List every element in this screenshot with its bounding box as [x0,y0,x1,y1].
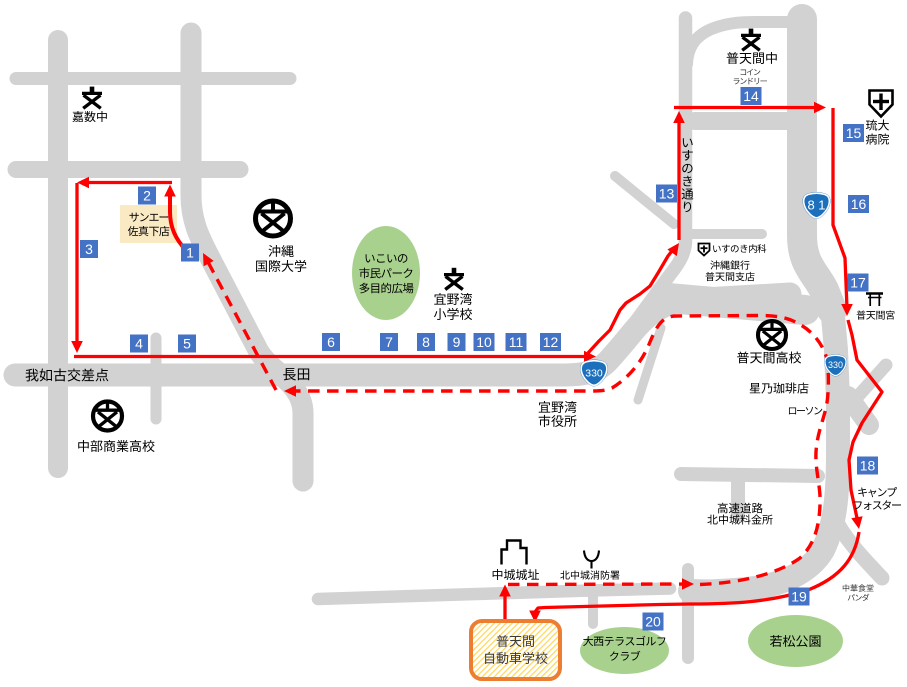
svg-text:330: 330 [828,360,843,370]
svg-text:20: 20 [645,614,661,630]
svg-text:330: 330 [585,367,603,379]
svg-text:18: 18 [860,458,876,474]
svg-text:14: 14 [743,88,759,104]
svg-text:3: 3 [85,241,93,257]
svg-text:2: 2 [143,188,151,204]
svg-text:12: 12 [543,334,559,350]
svg-text:4: 4 [135,336,143,352]
svg-text:9: 9 [453,334,461,350]
svg-text:19: 19 [791,589,807,605]
svg-text:11: 11 [509,334,524,350]
svg-text:5: 5 [183,336,191,352]
svg-text:10: 10 [476,334,492,350]
svg-text:13: 13 [659,186,675,202]
svg-text:16: 16 [851,196,867,212]
svg-text:17: 17 [850,275,866,291]
svg-text:8: 8 [422,334,430,350]
svg-text:15: 15 [846,125,862,141]
svg-text:6: 6 [327,334,335,350]
svg-text:8 1: 8 1 [807,198,825,213]
svg-text:1: 1 [186,245,194,261]
svg-text:7: 7 [385,334,393,350]
